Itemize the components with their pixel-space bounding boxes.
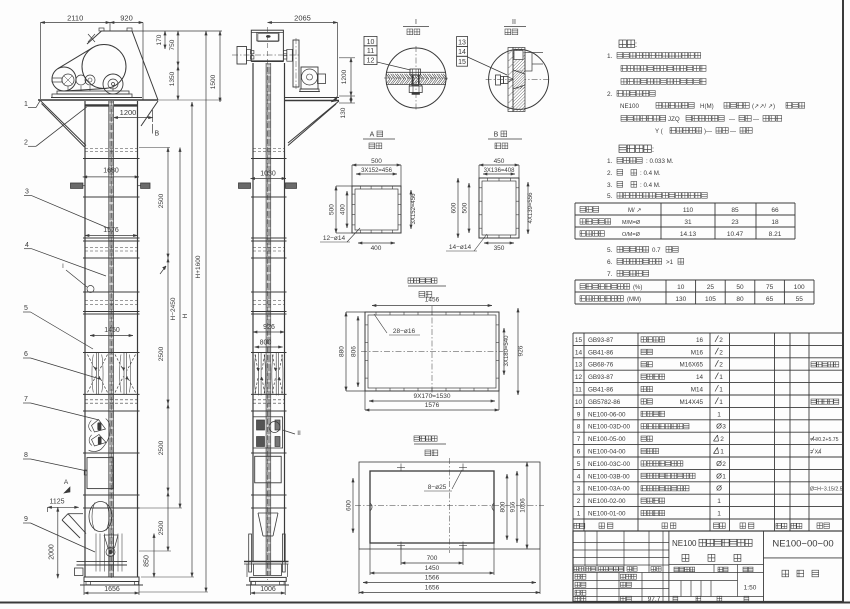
svg-text:NE100-03D-00: NE100-03D-00 [588, 424, 631, 431]
svg-text:500: 500 [371, 158, 382, 165]
svg-text:1350: 1350 [169, 71, 176, 86]
svg-text:1: 1 [717, 498, 721, 505]
svg-text:NE100-06-00: NE100-06-00 [588, 411, 626, 418]
svg-text:: 0.4 M.: : 0.4 M. [640, 182, 661, 189]
svg-text:55: 55 [796, 296, 804, 303]
svg-text:3: 3 [577, 486, 581, 493]
svg-text:16: 16 [696, 337, 704, 344]
svg-text:1125: 1125 [49, 499, 64, 506]
svg-text:GB41-86: GB41-86 [588, 349, 614, 356]
svg-text:5: 5 [577, 461, 581, 468]
svg-text:Y (: Y ( [655, 128, 664, 135]
svg-text:1: 1 [719, 399, 723, 406]
svg-text:170: 170 [156, 34, 163, 45]
svg-text:5.: 5. [607, 193, 613, 200]
svg-text:Ø: Ø [716, 422, 722, 431]
svg-text:1006: 1006 [260, 586, 276, 593]
svg-text:Ø: Ø [716, 484, 722, 493]
svg-text:50: 50 [736, 284, 744, 291]
svg-text:7.: 7. [607, 271, 613, 278]
svg-text:14−ø14: 14−ø14 [449, 244, 472, 251]
svg-text:=H/0.2+5.75: =H/0.2+5.75 [810, 437, 839, 443]
svg-text:1.: 1. [607, 53, 613, 60]
svg-text:31: 31 [684, 219, 692, 226]
svg-text:25: 25 [707, 284, 715, 291]
svg-text:M/ ↗: M/ ↗ [628, 208, 641, 214]
svg-text:3.: 3. [607, 182, 613, 189]
svg-text:B: B [494, 132, 499, 139]
svg-text:NE100-03C-00: NE100-03C-00 [588, 461, 631, 468]
svg-text:75: 75 [766, 284, 774, 291]
svg-text:800: 800 [260, 340, 272, 347]
svg-text:13: 13 [575, 362, 583, 369]
svg-text:2500: 2500 [158, 440, 165, 455]
svg-text:4: 4 [577, 473, 581, 480]
svg-text:M14X45: M14X45 [680, 399, 704, 406]
svg-text:700: 700 [427, 555, 438, 562]
svg-text:450: 450 [494, 158, 505, 165]
svg-text:8.21: 8.21 [769, 231, 782, 238]
svg-text:1:50: 1:50 [744, 585, 757, 592]
svg-text:12: 12 [575, 374, 583, 381]
svg-text:M16: M16 [691, 349, 704, 356]
svg-text:I: I [415, 19, 417, 26]
svg-text:A: A [370, 132, 375, 139]
svg-text:H(M): H(M) [700, 103, 714, 110]
svg-text:14.13: 14.13 [680, 231, 697, 238]
svg-text:600: 600 [451, 202, 458, 213]
svg-text:1656: 1656 [104, 586, 120, 593]
svg-text:3X152=456: 3X152=456 [361, 168, 393, 174]
svg-text:100: 100 [794, 284, 805, 291]
svg-text:400: 400 [371, 245, 382, 252]
svg-text:2500: 2500 [158, 520, 165, 535]
svg-text:1450: 1450 [104, 327, 120, 334]
svg-text:350: 350 [494, 245, 505, 252]
svg-text:2: 2 [719, 349, 723, 356]
svg-text:14: 14 [458, 49, 466, 56]
svg-text:400: 400 [340, 204, 347, 215]
svg-text:7: 7 [577, 436, 581, 443]
svg-text:880: 880 [339, 346, 346, 357]
svg-text:105: 105 [705, 296, 716, 303]
svg-text:920: 920 [120, 13, 133, 22]
svg-text:926: 926 [518, 345, 525, 356]
svg-text:O/M=Ø: O/M=Ø [622, 232, 641, 238]
svg-text:II: II [297, 430, 301, 437]
svg-text:1566: 1566 [425, 575, 440, 582]
svg-text:9: 9 [24, 516, 28, 523]
svg-text:NE100-03B-00: NE100-03B-00 [588, 473, 630, 480]
svg-text:1450: 1450 [425, 565, 440, 572]
svg-text:9X170=1530: 9X170=1530 [413, 393, 450, 400]
svg-text:1: 1 [717, 511, 721, 518]
svg-text:10: 10 [367, 39, 375, 46]
svg-text:12−ø14: 12−ø14 [323, 235, 346, 242]
svg-text:2: 2 [720, 436, 724, 443]
svg-text:1500: 1500 [210, 74, 217, 89]
svg-text:3: 3 [25, 189, 29, 196]
svg-text:—: — [729, 117, 735, 123]
svg-text:4: 4 [25, 242, 29, 249]
svg-text:1: 1 [577, 511, 581, 518]
svg-text:926: 926 [263, 324, 275, 331]
svg-text:15: 15 [458, 59, 466, 66]
svg-text:NE100: NE100 [620, 103, 639, 110]
svg-text:8−ø25: 8−ø25 [428, 484, 447, 491]
svg-text:M16X65: M16X65 [680, 362, 704, 369]
svg-text:0.7: 0.7 [652, 247, 661, 254]
svg-text:)—: )— [704, 129, 712, 135]
svg-text:66: 66 [771, 207, 779, 214]
svg-text:: 0.4 M.: : 0.4 M. [640, 170, 661, 177]
svg-text:2065: 2065 [294, 13, 311, 22]
svg-text:1: 1 [722, 473, 726, 480]
svg-text:1456: 1456 [425, 297, 440, 304]
svg-text:500: 500 [329, 204, 336, 215]
svg-text:800: 800 [500, 501, 507, 512]
svg-text:806: 806 [351, 346, 358, 357]
svg-text:130: 130 [675, 296, 686, 303]
svg-text:750: 750 [169, 39, 176, 50]
svg-text:1.: 1. [607, 158, 613, 165]
svg-text:7: 7 [24, 396, 28, 403]
svg-text:10: 10 [677, 284, 685, 291]
svg-text:Ø=H−3.15/2.5: Ø=H−3.15/2.5 [810, 487, 843, 493]
svg-text:2110: 2110 [67, 13, 83, 22]
svg-text:(↗↗/ ↗): (↗↗/ ↗) [752, 103, 775, 110]
svg-text:GB41-86: GB41-86 [588, 387, 614, 394]
svg-text:(%): (%) [633, 285, 642, 291]
svg-text:600: 600 [346, 500, 353, 511]
svg-text:2000: 2000 [49, 544, 56, 560]
svg-text:—: — [730, 129, 736, 135]
svg-text:2.: 2. [607, 91, 613, 98]
svg-text:1200: 1200 [120, 108, 137, 117]
svg-text:GB93-87: GB93-87 [588, 337, 614, 344]
svg-text:10: 10 [575, 399, 583, 406]
svg-text:H: H [182, 313, 189, 318]
svg-text:NE100−00−00: NE100−00−00 [772, 539, 833, 550]
svg-text:10.47: 10.47 [727, 231, 744, 238]
svg-text:14: 14 [696, 374, 704, 381]
svg-text:97.7: 97.7 [648, 596, 661, 603]
svg-text:2500: 2500 [158, 193, 165, 208]
svg-text:6: 6 [24, 351, 28, 358]
svg-text:1576: 1576 [425, 402, 440, 409]
svg-text:6.: 6. [607, 259, 613, 266]
svg-text:GB68-76: GB68-76 [588, 362, 614, 369]
svg-text:3X152=456: 3X152=456 [411, 193, 417, 225]
svg-text:—: — [753, 117, 759, 123]
svg-text:18: 18 [771, 219, 779, 226]
svg-text:5: 5 [24, 305, 28, 312]
svg-text:1680: 1680 [103, 168, 119, 175]
svg-text:65: 65 [766, 296, 774, 303]
svg-text:2: 2 [719, 337, 723, 344]
svg-text:JZQ: JZQ [668, 116, 680, 123]
svg-text:8: 8 [24, 452, 28, 459]
svg-text:Ø: Ø [716, 459, 722, 468]
svg-text:130: 130 [340, 107, 347, 118]
svg-text:1: 1 [719, 387, 723, 394]
svg-text:2: 2 [722, 461, 726, 468]
svg-text:1656: 1656 [425, 585, 440, 592]
svg-text:2: 2 [24, 140, 28, 147]
svg-text:A: A [64, 479, 69, 486]
svg-text:8: 8 [577, 424, 581, 431]
svg-text:1: 1 [24, 101, 28, 108]
svg-text:NE100-01-00: NE100-01-00 [588, 511, 626, 518]
svg-text:11: 11 [367, 48, 374, 55]
svg-text::: : [635, 40, 637, 49]
svg-text:1200: 1200 [341, 69, 348, 84]
svg-text::: : [652, 145, 654, 154]
svg-text:M/M=Ø: M/M=Ø [622, 220, 641, 226]
svg-text:15: 15 [575, 337, 583, 344]
svg-text:850: 850 [144, 555, 151, 567]
svg-text:5.: 5. [607, 247, 613, 254]
svg-text:(MM): (MM) [627, 297, 641, 303]
svg-text:3X136=408: 3X136=408 [484, 168, 516, 174]
svg-text:GB93-87: GB93-87 [588, 374, 614, 381]
svg-text:1006: 1006 [520, 498, 527, 513]
svg-text:NE100-04-00: NE100-04-00 [588, 449, 626, 456]
svg-text:1: 1 [717, 411, 721, 418]
svg-text:4X139=556: 4X139=556 [528, 192, 534, 224]
svg-text:85: 85 [731, 207, 739, 214]
svg-text:12: 12 [367, 58, 375, 65]
svg-text:3X180=540: 3X180=540 [504, 335, 510, 367]
svg-text:Ø: Ø [716, 471, 722, 480]
svg-text:28−ø16: 28−ø16 [393, 328, 416, 335]
svg-text:110: 110 [683, 207, 694, 214]
svg-text:6: 6 [577, 449, 581, 456]
svg-text:1576: 1576 [103, 227, 119, 234]
svg-text:: 0.033 M.: : 0.033 M. [646, 158, 674, 165]
svg-text:GB5782-86: GB5782-86 [588, 399, 621, 406]
svg-text:2: 2 [577, 498, 581, 505]
svg-text:B: B [154, 131, 159, 138]
svg-text:>1: >1 [666, 259, 674, 266]
svg-text:H−2450: H−2450 [170, 297, 177, 320]
svg-text:13: 13 [458, 39, 466, 46]
svg-text:II: II [512, 19, 516, 26]
svg-text:916: 916 [510, 501, 517, 512]
svg-text:2.: 2. [607, 170, 613, 177]
svg-text:80: 80 [736, 296, 744, 303]
svg-text:500: 500 [462, 202, 469, 213]
svg-text:H+1600: H+1600 [195, 255, 202, 278]
svg-text:NE100-03A-00: NE100-03A-00 [588, 486, 630, 493]
svg-text:14: 14 [575, 349, 583, 356]
svg-text:1030: 1030 [260, 171, 276, 178]
svg-text:11: 11 [575, 387, 582, 394]
svg-text:23: 23 [731, 219, 739, 226]
svg-text:1: 1 [719, 374, 723, 381]
svg-text:2500: 2500 [158, 346, 165, 361]
svg-text:NE100: NE100 [672, 539, 697, 548]
svg-text:2: 2 [719, 362, 723, 369]
svg-text:NE100-05-00: NE100-05-00 [588, 436, 626, 443]
svg-text:NE100-02-00: NE100-02-00 [588, 498, 626, 505]
svg-text:1: 1 [720, 449, 724, 456]
svg-text:3: 3 [722, 424, 726, 431]
svg-text:M14: M14 [691, 387, 704, 394]
svg-text:9: 9 [577, 411, 581, 418]
